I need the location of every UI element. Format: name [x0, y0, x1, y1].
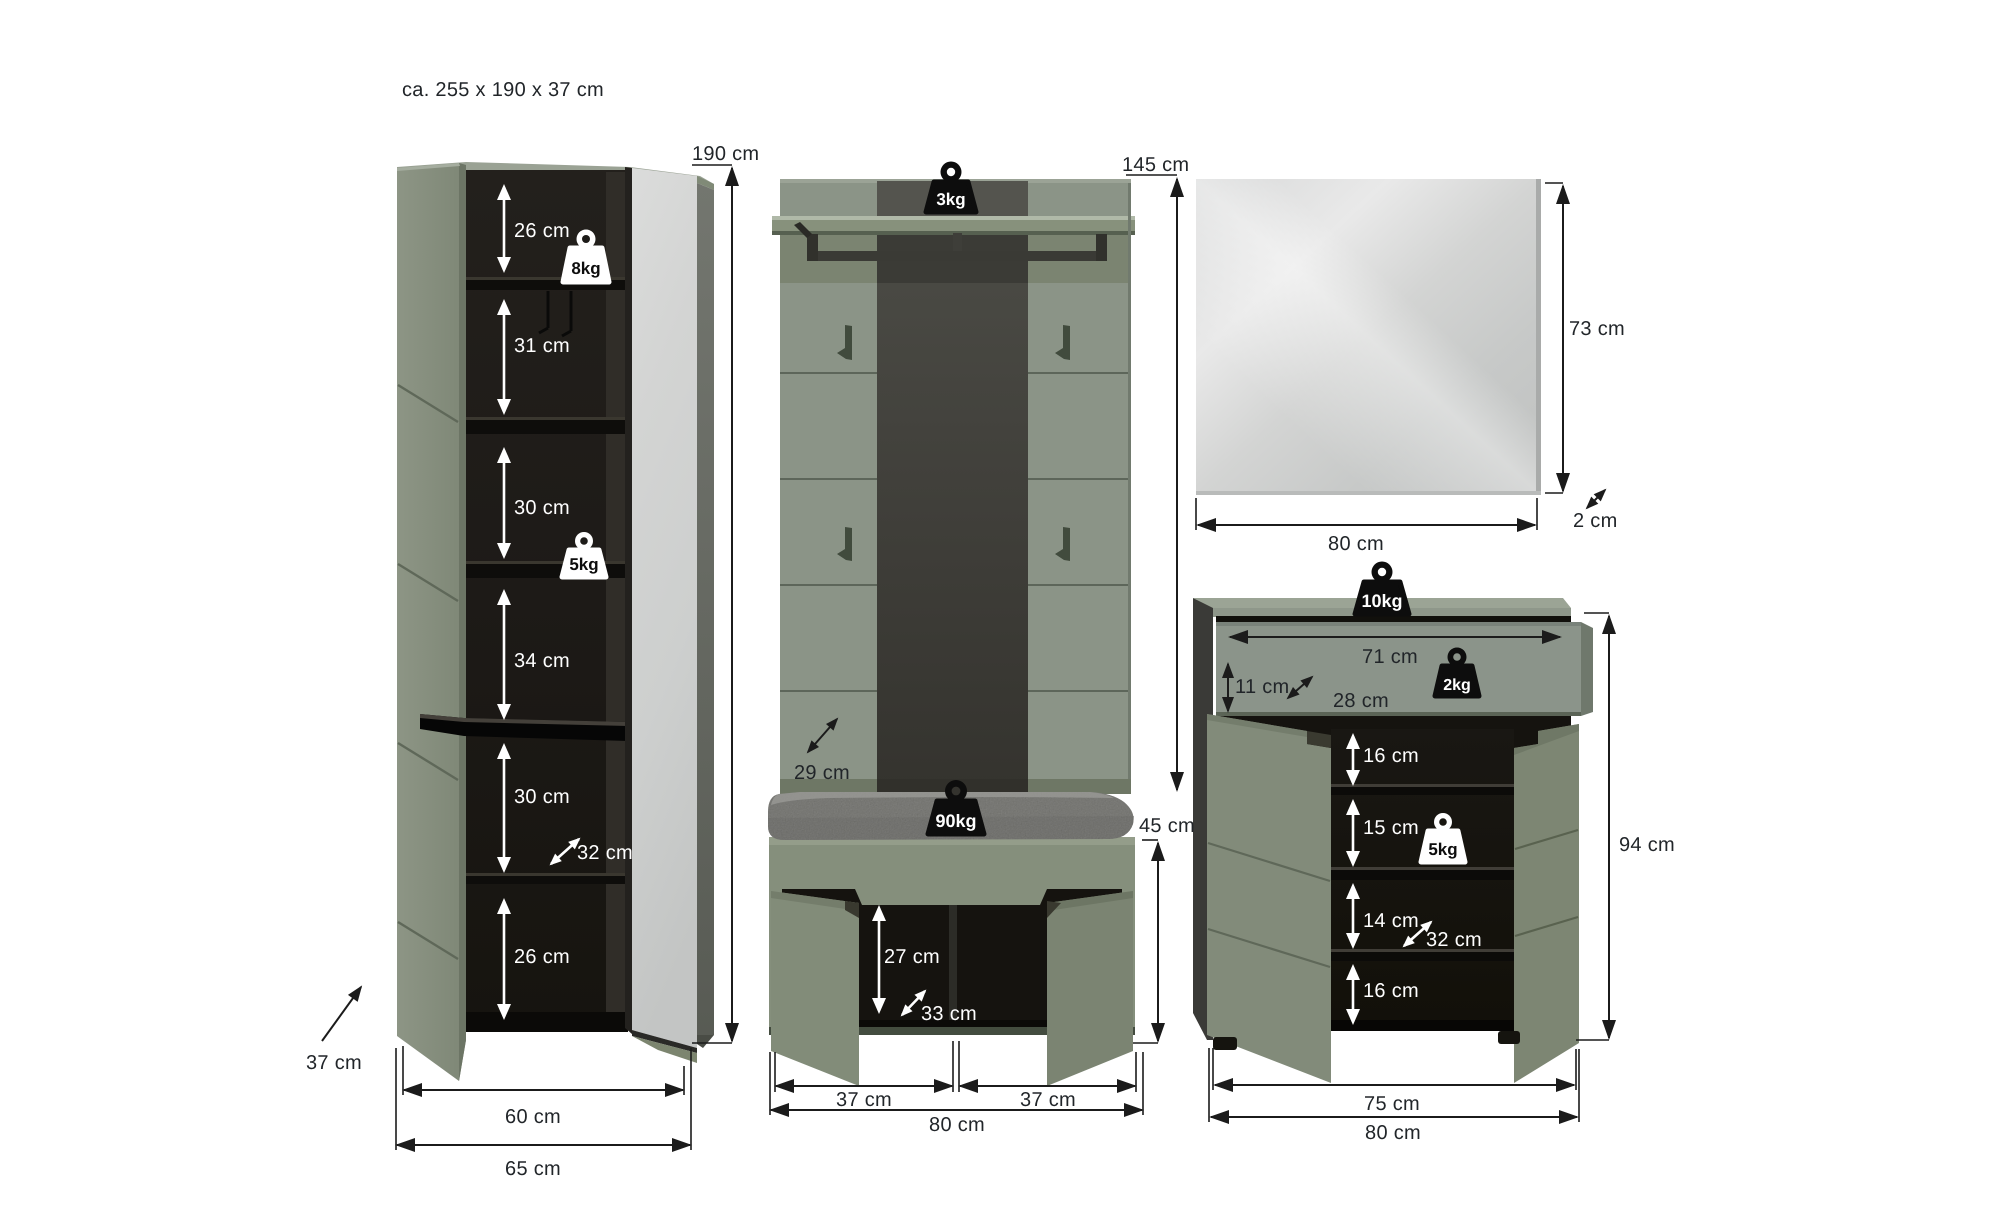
svg-text:90kg: 90kg	[935, 811, 976, 831]
svg-text:34 cm: 34 cm	[514, 650, 570, 672]
svg-text:2 cm: 2 cm	[1573, 510, 1618, 532]
svg-text:33 cm: 33 cm	[921, 1003, 977, 1025]
svg-text:80 cm: 80 cm	[1328, 533, 1384, 555]
svg-text:29 cm: 29 cm	[794, 762, 850, 784]
svg-text:190 cm: 190 cm	[692, 143, 759, 165]
svg-text:5kg: 5kg	[1428, 840, 1457, 859]
svg-text:37 cm: 37 cm	[306, 1052, 362, 1074]
svg-text:32 cm: 32 cm	[577, 842, 633, 864]
svg-text:2kg: 2kg	[1443, 677, 1471, 694]
svg-text:11 cm: 11 cm	[1235, 676, 1289, 698]
svg-text:73 cm: 73 cm	[1569, 318, 1625, 340]
svg-text:26 cm: 26 cm	[514, 946, 570, 968]
svg-text:30 cm: 30 cm	[514, 497, 570, 519]
svg-text:145 cm: 145 cm	[1122, 154, 1189, 176]
svg-text:15 cm: 15 cm	[1363, 817, 1419, 839]
svg-text:ca. 255 x 190 x 37 cm: ca. 255 x 190 x 37 cm	[402, 79, 604, 101]
svg-text:10kg: 10kg	[1361, 591, 1402, 611]
svg-text:32 cm: 32 cm	[1426, 929, 1482, 951]
svg-text:3kg: 3kg	[936, 190, 965, 209]
svg-text:37 cm: 37 cm	[836, 1089, 892, 1111]
svg-text:80 cm: 80 cm	[929, 1114, 985, 1136]
svg-text:37 cm: 37 cm	[1020, 1089, 1076, 1111]
svg-text:8kg: 8kg	[571, 259, 600, 278]
svg-text:31 cm: 31 cm	[514, 335, 570, 357]
svg-text:75 cm: 75 cm	[1364, 1093, 1420, 1115]
svg-text:5kg: 5kg	[569, 555, 598, 574]
svg-text:26 cm: 26 cm	[514, 220, 570, 242]
svg-text:28 cm: 28 cm	[1333, 690, 1389, 712]
svg-text:45 cm: 45 cm	[1139, 815, 1195, 837]
svg-text:27 cm: 27 cm	[884, 946, 940, 968]
svg-text:65 cm: 65 cm	[505, 1158, 561, 1180]
svg-text:80 cm: 80 cm	[1365, 1122, 1421, 1144]
svg-text:71 cm: 71 cm	[1362, 646, 1418, 668]
svg-text:30 cm: 30 cm	[514, 786, 570, 808]
svg-text:60 cm: 60 cm	[505, 1106, 561, 1128]
svg-text:94 cm: 94 cm	[1619, 834, 1675, 856]
svg-text:14 cm: 14 cm	[1363, 910, 1419, 932]
svg-text:16 cm: 16 cm	[1363, 745, 1419, 767]
svg-text:16 cm: 16 cm	[1363, 980, 1419, 1002]
